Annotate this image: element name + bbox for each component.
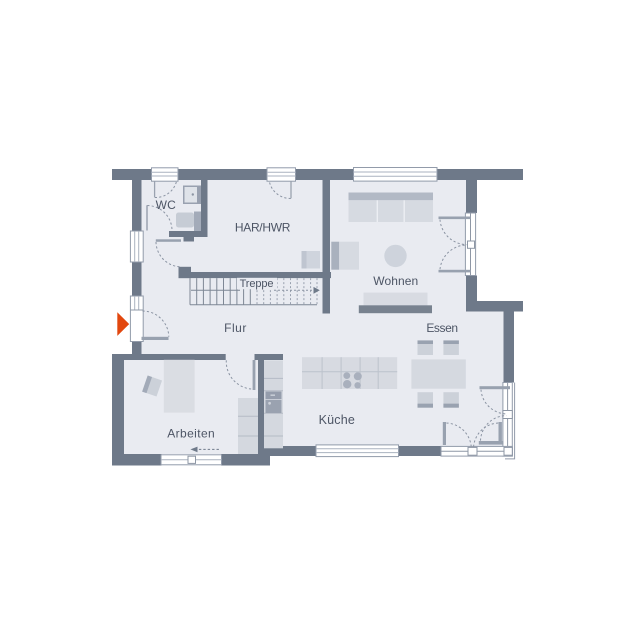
svg-text:Essen: Essen — [426, 321, 457, 335]
svg-text:WC: WC — [156, 198, 177, 212]
svg-text:Wohnen: Wohnen — [373, 274, 418, 288]
svg-text:HAR/HWR: HAR/HWR — [235, 221, 291, 235]
svg-text:Arbeiten: Arbeiten — [167, 426, 215, 440]
svg-text:Küche: Küche — [319, 413, 355, 427]
svg-text:Treppe: Treppe — [240, 278, 274, 290]
svg-text:Flur: Flur — [224, 321, 247, 335]
